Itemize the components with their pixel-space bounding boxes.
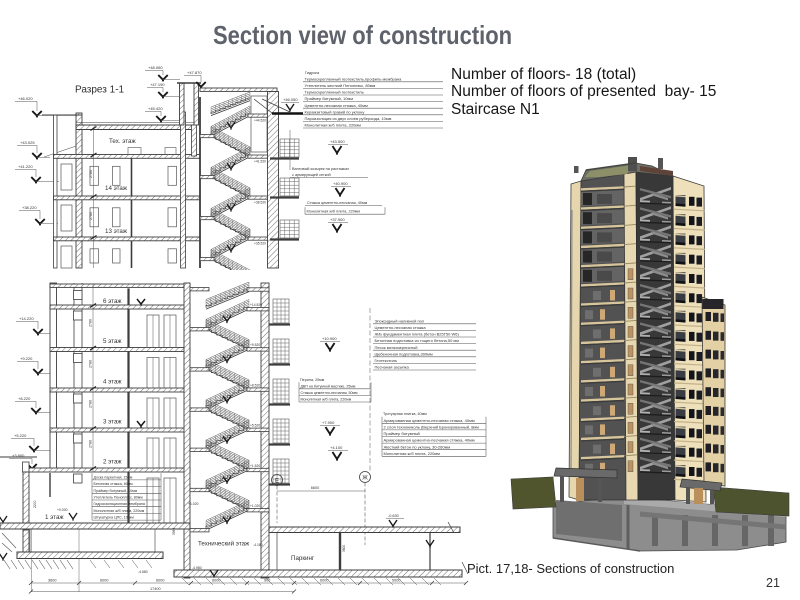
svg-text:+38.220: +38.220 <box>22 205 37 210</box>
svg-text:Бетонная подготовка из тощего: Бетонная подготовка из тощего бетона,50 … <box>375 338 460 343</box>
svg-text:Е: Е <box>275 479 279 485</box>
svg-text:Стяжка цементно-песчаная, 50мм: Стяжка цементно-песчаная, 50мм <box>301 391 359 395</box>
svg-text:Паркинг: Паркинг <box>291 555 315 562</box>
svg-text:+43.500: +43.500 <box>330 139 345 144</box>
svg-text:17400: 17400 <box>150 587 161 591</box>
svg-text:Ж: Ж <box>362 476 368 482</box>
svg-text:Тех. этаж: Тех. этаж <box>109 138 136 145</box>
svg-text:5000: 5000 <box>392 579 400 583</box>
svg-text:+48.060: +48.060 <box>148 65 163 70</box>
svg-text:+47.190: +47.190 <box>150 82 165 87</box>
svg-text:3600: 3600 <box>48 579 56 583</box>
svg-text:Утеплитель жесткий Пеноплэкс,: Утеплитель жесткий Пеноплэкс, 80мм <box>305 83 376 88</box>
svg-text:Праймер битумный, 10мм: Праймер битумный, 10мм <box>94 489 138 493</box>
svg-text:2200: 2200 <box>33 500 37 508</box>
svg-text:+10.900: +10.900 <box>322 336 337 341</box>
svg-text:3 этаж: 3 этаж <box>103 419 122 426</box>
svg-text:+41.220: +41.220 <box>18 164 33 169</box>
svg-text:Технический этаж: Технический этаж <box>198 541 250 548</box>
svg-text:6000: 6000 <box>320 579 328 583</box>
svg-text:2780: 2780 <box>89 400 93 408</box>
svg-text:Песок мелкозернистый: Песок мелкозернистый <box>375 345 418 350</box>
svg-text:Праймер битумный: Праймер битумный <box>384 431 420 436</box>
svg-text:+5.520: +5.520 <box>250 424 260 428</box>
svg-text:3980: 3980 <box>172 528 176 535</box>
svg-text:-0.630: -0.630 <box>388 514 399 518</box>
svg-text:+14.520: +14.520 <box>250 303 262 307</box>
svg-text:2780: 2780 <box>89 170 93 178</box>
svg-text:Песчаная засыпка: Песчаная засыпка <box>375 365 410 370</box>
svg-text:5 этаж: 5 этаж <box>103 338 122 345</box>
svg-text:Жесткий бетон по уклону, 30-26: Жесткий бетон по уклону, 30-260мм <box>384 444 451 449</box>
svg-text:+45.420: +45.420 <box>148 106 163 111</box>
svg-text:+1.520: +1.520 <box>250 464 260 468</box>
svg-text:Праймер битумный, 10мм: Праймер битумный, 10мм <box>305 96 354 101</box>
svg-text:+46.020: +46.020 <box>18 96 33 101</box>
svg-text:14 этаж: 14 этаж <box>105 185 128 192</box>
svg-text:3600: 3600 <box>342 545 346 552</box>
svg-text:Тротуарная плитка, 40мм: Тротуарная плитка, 40мм <box>383 412 427 416</box>
svg-text:с армирующей сеткой: с армирующей сеткой <box>292 173 331 177</box>
svg-text:-4.180: -4.180 <box>253 543 263 547</box>
svg-text:Эпоксидный наливной пол: Эпоксидный наливной пол <box>375 318 425 323</box>
svg-text:Монолитная ж/б плита, 220мм: Монолитная ж/б плита, 220мм <box>307 209 361 213</box>
svg-text:Доска паркетная, 15мм: Доска паркетная, 15мм <box>94 475 133 479</box>
svg-text:6000: 6000 <box>100 579 108 583</box>
svg-text:+9.520: +9.520 <box>250 343 260 347</box>
svg-text:Керамзитовый гравий по уклону: Керамзитовый гравий по уклону <box>305 109 365 114</box>
svg-text:2 слоя технониколь (Верхний Бр: 2 слоя технониколь (Верхний Бронированны… <box>384 425 480 430</box>
svg-text:+7.900: +7.900 <box>322 420 335 425</box>
svg-text:-4.680: -4.680 <box>138 570 148 574</box>
svg-text:+0.000: +0.000 <box>57 508 68 512</box>
svg-text:6 этаж: 6 этаж <box>103 298 122 305</box>
svg-text:Монолитная ж/б плита, 220мм: Монолитная ж/б плита, 220мм <box>301 398 352 402</box>
svg-text:+8.220: +8.220 <box>18 396 31 401</box>
svg-text:+46.050: +46.050 <box>283 97 298 102</box>
svg-text:Монолитная ж/б плита, 220мм: Монолитная ж/б плита, 220мм <box>305 123 362 128</box>
svg-text:+4.100: +4.100 <box>330 445 343 450</box>
svg-text:+44.520: +44.520 <box>254 119 266 123</box>
svg-text:+40.900: +40.900 <box>333 181 348 186</box>
svg-text:+35.520: +35.520 <box>254 242 266 246</box>
svg-text:4 этаж: 4 этаж <box>103 379 122 386</box>
svg-text:2780: 2780 <box>89 212 93 220</box>
svg-text:Армированная цементно-песчаная: Армированная цементно-песчаная стяжка, 4… <box>384 418 475 423</box>
svg-text:+9.220: +9.220 <box>20 356 33 361</box>
svg-text:1 этаж: 1 этаж <box>45 514 64 521</box>
svg-text:Термоскрепленный геотекстиль: Термоскрепленный геотекстиль <box>305 90 364 95</box>
svg-text:Стяжка цементно-песчаная, 40мм: Стяжка цементно-песчаная, 40мм <box>307 201 368 205</box>
svg-text:Монолитная ж/б плита, 220мм: Монолитная ж/б плита, 220мм <box>94 509 145 513</box>
svg-text:+1.020: +1.020 <box>250 504 260 508</box>
svg-text:Армированная цементно-песчаная: Армированная цементно-песчаная стяжка, 4… <box>384 438 475 443</box>
svg-text:Пароизоляция из двух слоев руб: Пароизоляция из двух слоев рубероида, 10… <box>305 116 392 121</box>
svg-text:13 этаж: 13 этаж <box>105 228 128 235</box>
svg-text:Гидроиз: Гидроиз <box>305 71 320 75</box>
svg-text:Разрез 1-1: Разрез 1-1 <box>75 85 125 96</box>
svg-text:900: 900 <box>264 579 270 583</box>
svg-text:Геотекстиль: Геотекстиль <box>375 358 398 363</box>
svg-text:2 этаж: 2 этаж <box>103 459 122 466</box>
svg-text:6000: 6000 <box>156 579 164 583</box>
svg-text:2780: 2780 <box>89 360 93 368</box>
svg-text:+5.220: +5.220 <box>14 433 27 438</box>
svg-text:Утеплитель Пеноплэкс, 80мм: Утеплитель Пеноплэкс, 80мм <box>94 496 144 500</box>
svg-text:-4.980: -4.980 <box>192 566 202 570</box>
svg-text:Цементно-песчаная стяжка: Цементно-песчаная стяжка <box>375 325 427 330</box>
svg-text:Термоскрепленный геотекстиль,п: Термоскрепленный геотекстиль,профиль мем… <box>305 76 403 81</box>
svg-text:Цементно-песчаная стяжка, 40мм: Цементно-песчаная стяжка, 40мм <box>305 103 368 108</box>
svg-text:Щебеночная подготовка,300мм: Щебеночная подготовка,300мм <box>375 351 433 356</box>
svg-text:2780: 2780 <box>89 319 93 327</box>
svg-text:Ж/Б фундаментная плита (бетон: Ж/Б фундаментная плита (бетон В25Г50 W6) <box>375 332 460 337</box>
svg-text:ДВП на битумной мастике, 25мм: ДВП на битумной мастике, 25мм <box>301 384 356 388</box>
svg-text:+37.900: +37.900 <box>330 217 345 222</box>
svg-text:Гидроизоляционная мембрана: Гидроизоляционная мембрана <box>94 502 145 506</box>
svg-text:+47.870: +47.870 <box>187 70 202 75</box>
svg-text:2780: 2780 <box>89 440 93 448</box>
svg-text:Вантовый козырек на растяжках: Вантовый козырек на растяжках <box>292 167 349 171</box>
svg-text:Штукатурка ЦПС, 10 мм: Штукатурка ЦПС, 10 мм <box>94 516 135 520</box>
svg-text:6600: 6600 <box>311 486 319 490</box>
svg-text:+14.220: +14.220 <box>19 316 34 321</box>
svg-text:6000: 6000 <box>212 579 220 583</box>
svg-text:Перила, 20мм: Перила, 20мм <box>300 378 325 382</box>
svg-text:Монолитная ж/б плита, 220мм: Монолитная ж/б плита, 220мм <box>384 451 441 456</box>
svg-text:+43.025: +43.025 <box>20 140 35 145</box>
svg-text:+8.520: +8.520 <box>250 383 260 387</box>
svg-text:+38.520: +38.520 <box>254 201 266 205</box>
svg-text:Бетонная стяжка, 80мм: Бетонная стяжка, 80мм <box>94 482 134 486</box>
svg-text:+41.520: +41.520 <box>254 160 266 164</box>
svg-text:+1.020: +1.020 <box>188 502 199 506</box>
